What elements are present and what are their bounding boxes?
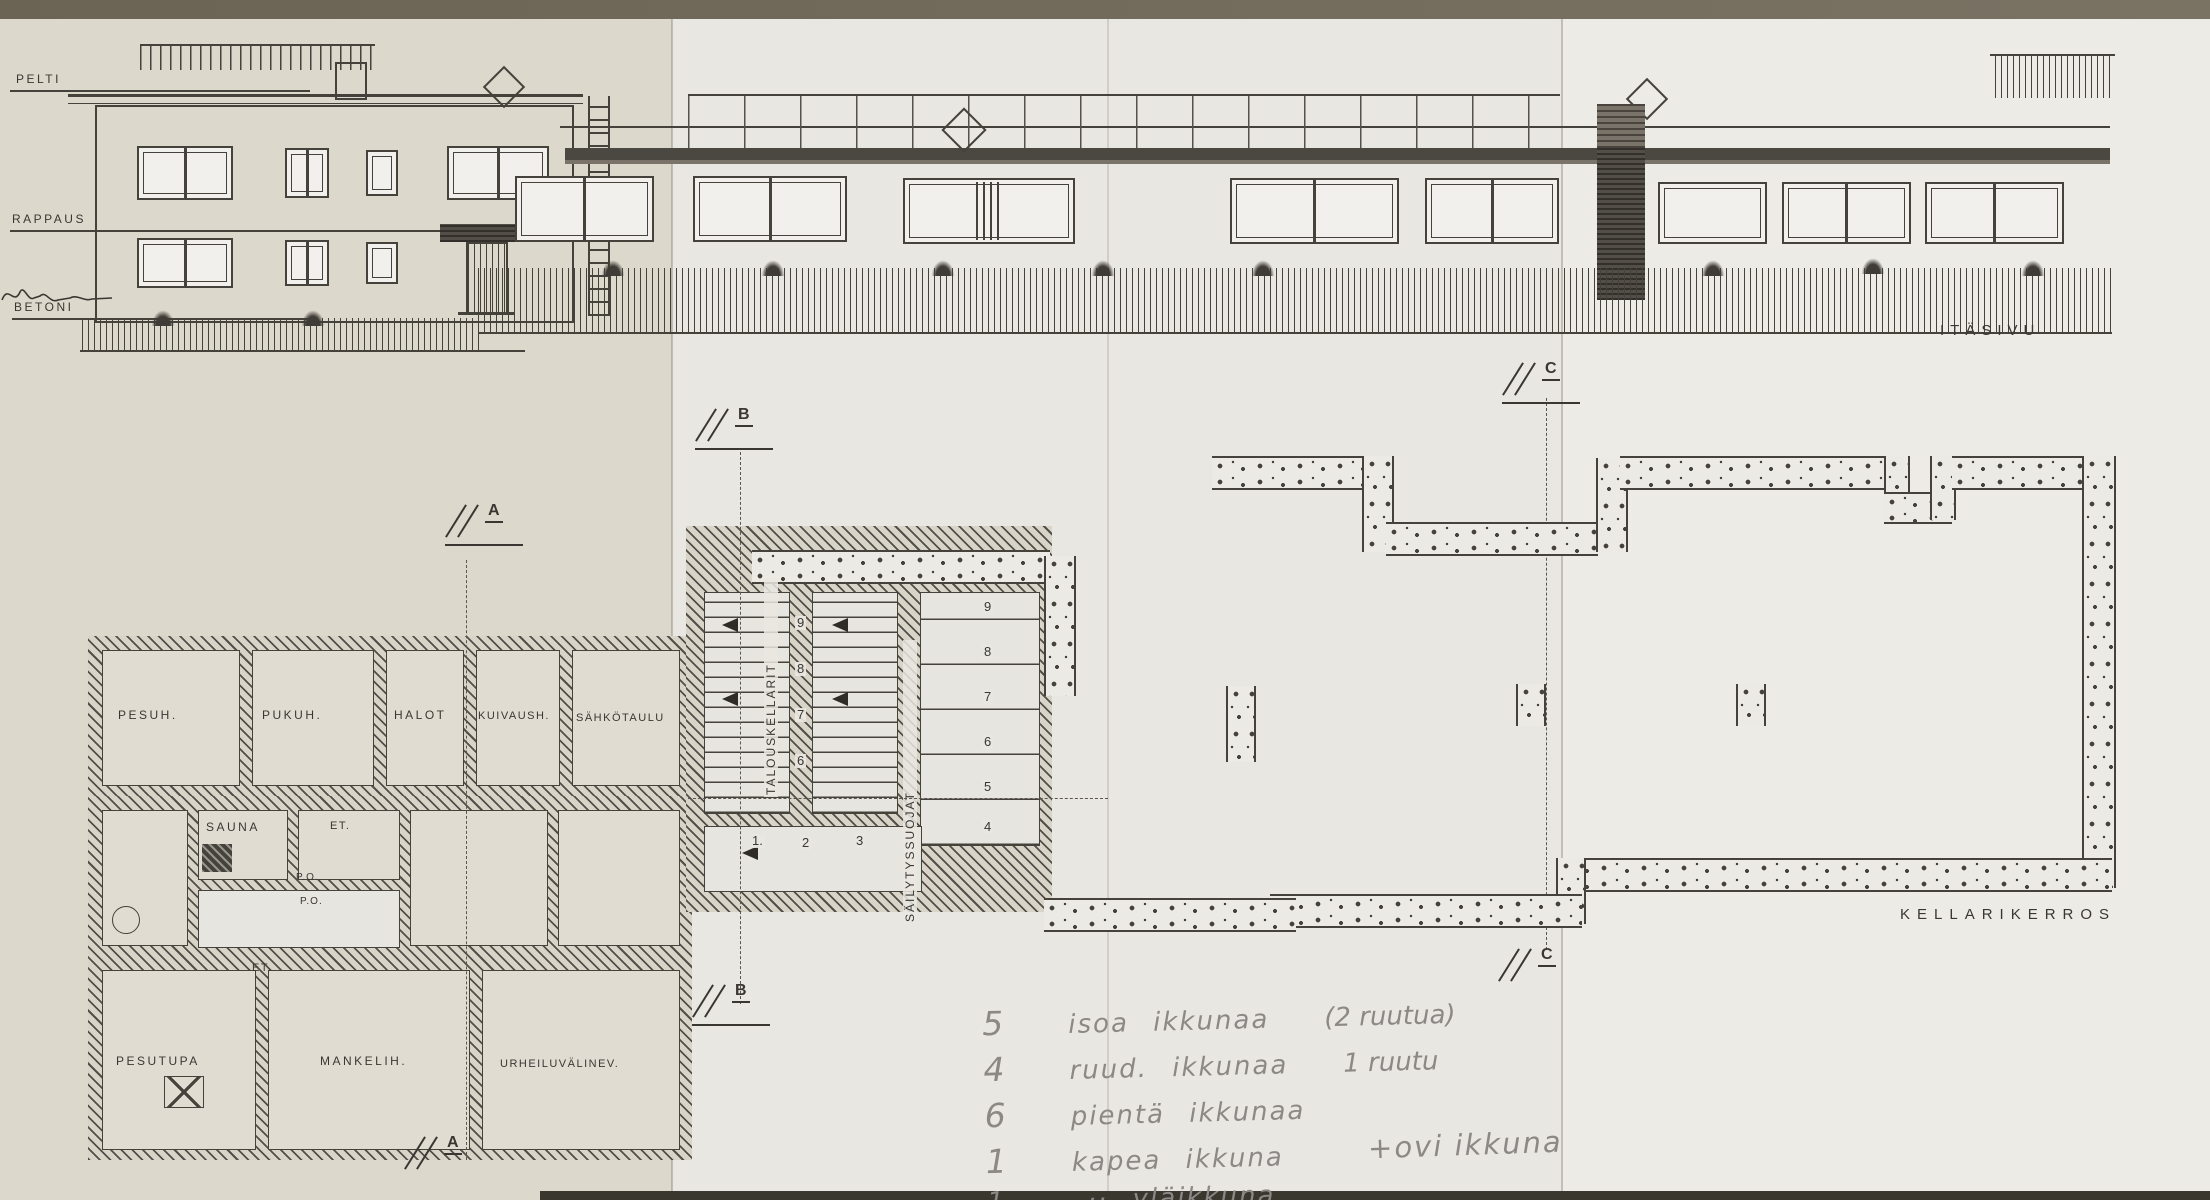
marker-letter: C — [1542, 360, 1560, 381]
marker-slash — [445, 504, 467, 537]
plan-title: KELLARIKERROS — [1900, 906, 2116, 923]
marker-slash — [1502, 362, 1524, 395]
leader-line — [10, 90, 310, 92]
window — [137, 146, 233, 200]
plant-tuft — [1860, 256, 1886, 274]
compartment-number: 5 — [982, 780, 993, 794]
section-marker-b-bottom: B — [692, 980, 776, 1034]
marker-baseline — [695, 448, 773, 450]
plant-tuft — [1250, 258, 1276, 276]
band-window — [1782, 182, 1911, 244]
band-window — [903, 178, 1075, 244]
window — [366, 242, 398, 284]
window-mullion — [583, 178, 586, 240]
elevation-view-label: ITÄSIVU — [1940, 322, 2040, 339]
rubble-pier — [1226, 686, 1256, 762]
window — [285, 240, 329, 286]
room-label-pesuh: PESUH. — [118, 708, 178, 722]
stair-flight — [812, 592, 898, 814]
storage-compartments — [920, 592, 1040, 846]
window-mullion — [1993, 184, 1996, 242]
note-line-total: 1 17 –·· yläikkuna — [987, 1176, 1462, 1200]
note-qty: 1 — [985, 1140, 1072, 1181]
compartment-number: 9 — [982, 600, 993, 614]
rubble-wall-left — [1044, 556, 1076, 696]
marker-letter: A — [444, 1134, 462, 1155]
rubble-wall-bottom — [1556, 858, 2112, 892]
window-mullion — [1845, 184, 1848, 242]
roof-railing-ticks — [1995, 56, 2110, 98]
note-qty: 5 — [982, 1002, 1069, 1043]
note-line: 6 pientä ikkunaa — [984, 1084, 1458, 1135]
marker-slash — [404, 1136, 426, 1169]
note-qty: 1 — [987, 1189, 1005, 1200]
window-mullion — [306, 150, 309, 196]
section-marker-a-bottom: A — [404, 1132, 488, 1186]
rubble-pier — [1516, 684, 1546, 726]
compartment-number: 8 — [982, 645, 993, 659]
band-window — [1658, 182, 1767, 244]
window — [137, 238, 233, 288]
material-label-pelti: PELTI — [16, 72, 61, 86]
compartment-number: 6 — [982, 735, 993, 749]
window — [366, 150, 398, 196]
stair-direction-arrow — [832, 618, 848, 632]
plant-tuft — [2020, 258, 2046, 276]
marker-letter: A — [485, 502, 503, 523]
note-extra: (2 ruutua) — [1324, 1000, 1456, 1033]
note-total-fraction: 1 17 — [987, 1187, 1075, 1200]
centre-line — [688, 798, 1108, 799]
marker-baseline — [1502, 402, 1580, 404]
room-label-pukuh: PUKUH. — [262, 708, 322, 722]
room-label-sahkotaulu: SÄHKÖTAULU — [576, 712, 665, 724]
window-mullion-strip — [976, 182, 1002, 240]
note-line: 4 ruud. ikkunaa 1 ruutu — [983, 1038, 1457, 1089]
note-text: isoa ikkunaa — [1068, 1005, 1270, 1040]
compartment-number: 6 — [795, 754, 806, 768]
sauna-stove — [202, 844, 232, 872]
note-text: –·· yläikkuna — [1073, 1181, 1276, 1200]
window-mullion — [497, 148, 500, 198]
section-marker-c-top: C — [1502, 358, 1586, 412]
plant-tuft — [150, 308, 176, 326]
chimney-top — [1597, 104, 1645, 148]
room-label-po: P.O. — [300, 896, 323, 907]
window-frame — [372, 248, 392, 278]
section-line-a — [466, 560, 467, 1160]
stair-corridor — [704, 826, 922, 892]
roof-fascia-band — [565, 148, 2110, 160]
chimney-small — [335, 62, 367, 100]
compartment-number: 3 — [854, 834, 865, 848]
band-window — [515, 176, 654, 242]
compartment-number: 8 — [795, 662, 806, 676]
rubble-wall — [752, 550, 1050, 584]
band-window — [693, 176, 847, 242]
room-label-halot: HALOT — [394, 708, 447, 722]
stair-label-talouskellarit: TALOUSKELLARIT — [764, 578, 778, 797]
marker-slash — [1510, 948, 1532, 981]
marker-slash — [457, 504, 479, 537]
window-mullion — [306, 242, 309, 284]
roof-railing-posts — [688, 96, 1560, 148]
window-mullion — [1313, 180, 1316, 242]
pencil-notes-window-count: 5 isoa ikkunaa (2 ruutua) 4 ruud. ikkuna… — [982, 992, 1462, 1200]
section-marker-a-top: A — [445, 500, 529, 554]
window — [285, 148, 329, 198]
marker-slash — [695, 408, 717, 441]
stair-direction-arrow — [832, 692, 848, 706]
room-label-po: P.O. — [296, 872, 319, 883]
plant-tuft — [1700, 258, 1726, 276]
architectural-drawing-scan: PELTI RAPPAUS BETONI — [0, 0, 2210, 1200]
washtub-fixture — [164, 1076, 204, 1108]
compartment-number: 7 — [982, 690, 993, 704]
compartment-number: 1. — [750, 834, 765, 848]
rubble-wall-top — [1620, 456, 1888, 490]
note-extra: 1 ruutu — [1343, 1046, 1439, 1078]
marker-baseline — [445, 544, 523, 546]
section-line-c — [1546, 398, 1547, 950]
stair-direction-arrow — [722, 692, 738, 706]
note-text: ruud. ikkunaa — [1069, 1050, 1289, 1086]
room-label-urheiluvalinev: URHEILUVÄLINEV. — [500, 1058, 619, 1070]
paper-fold-line — [1561, 16, 1563, 1200]
stair-label-sailytyssuojat: SÄILYTYSSUOJAT — [903, 640, 917, 924]
marker-slash — [416, 1136, 438, 1169]
marker-letter: C — [1538, 946, 1556, 967]
room-label-kuivaush: KUIVAUSH. — [478, 710, 550, 722]
material-label-rappaus: RAPPAUS — [12, 212, 86, 226]
rubble-wall-top — [1212, 456, 1368, 490]
room-label-pesutupa: PESUTUPA — [116, 1054, 200, 1068]
plant-tuft — [930, 258, 956, 276]
stair-direction-arrow — [722, 618, 738, 632]
planting-band — [82, 318, 482, 350]
note-text: kapea ikkuna — [1072, 1142, 1285, 1178]
table-edge-top — [0, 0, 2210, 19]
rubble-wall-top — [1386, 522, 1598, 556]
marker-slash — [707, 408, 729, 441]
band-window — [1925, 182, 2064, 244]
corridor — [198, 890, 400, 948]
note-text: pientä ikkunaa — [1070, 1096, 1305, 1132]
band-window — [1425, 178, 1559, 244]
room-label-et: ET. — [252, 962, 272, 974]
marker-slash — [704, 984, 726, 1017]
marker-slash — [692, 984, 714, 1017]
floor-drain — [112, 906, 140, 934]
marker-slash — [1514, 362, 1536, 395]
planting-band — [478, 268, 2112, 332]
marker-letter: B — [735, 406, 753, 427]
note-qty: 6 — [984, 1094, 1071, 1135]
window-frame — [1664, 188, 1761, 238]
room-label-et: ET. — [330, 820, 350, 832]
room-side — [410, 810, 548, 946]
window-mullion — [769, 178, 772, 240]
section-marker-b-top: B — [695, 404, 779, 458]
rubble-wall-bottom — [1044, 898, 1296, 932]
section-marker-c-bottom: C — [1498, 944, 1582, 998]
room-side — [558, 810, 680, 946]
marker-letter: B — [732, 982, 750, 1003]
window-mullion — [1491, 180, 1494, 242]
section-line-b — [740, 452, 741, 1004]
marker-baseline — [692, 1024, 770, 1026]
plant-tuft — [1090, 258, 1116, 276]
compartment-number: 9 — [795, 616, 806, 630]
compartment-number: 7 — [795, 708, 806, 722]
plant-tuft — [600, 258, 626, 276]
plant-tuft — [760, 258, 786, 276]
plant-tuft — [300, 308, 326, 326]
band-window — [1230, 178, 1399, 244]
window-mullion — [184, 148, 187, 198]
room-label-sauna: SAUNA — [206, 820, 260, 834]
room-label-mankelih: MANKELIH. — [320, 1054, 407, 1068]
note-qty: 4 — [983, 1048, 1070, 1089]
window-frame — [372, 156, 392, 190]
compartment-number: 4 — [982, 820, 993, 834]
compartment-number: 2 — [800, 836, 811, 850]
window-mullion — [184, 240, 187, 286]
rubble-wall-bottom — [1270, 894, 1582, 928]
marker-slash — [1498, 948, 1520, 981]
ground-line — [478, 332, 2112, 334]
ground-line — [80, 350, 525, 352]
rubble-wall-right — [2082, 456, 2116, 888]
rubble-pier — [1736, 684, 1766, 726]
pencil-note-door-window: +ovi ikkuna — [1367, 1125, 1563, 1166]
fascia-shadow — [565, 160, 2110, 164]
